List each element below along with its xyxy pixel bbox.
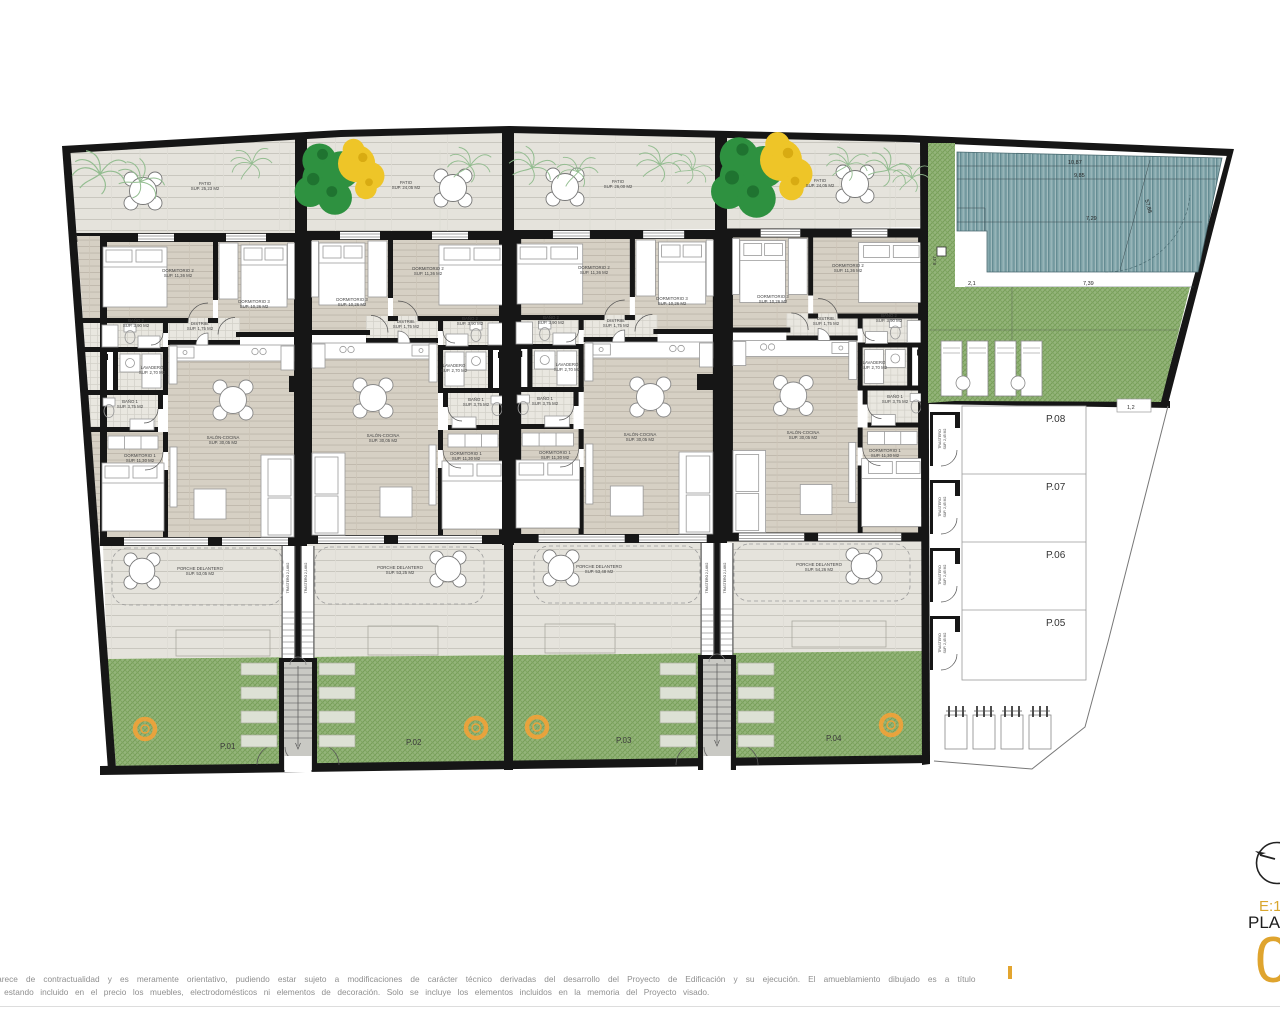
svg-text:SUP. 11,30 M2: SUP. 11,30 M2 (541, 455, 570, 460)
svg-text:TRASTERO 2,14M2: TRASTERO 2,14M2 (723, 563, 727, 594)
svg-text:P.05: P.05 (1046, 618, 1066, 629)
svg-text:SUP. 3,75 M2: SUP. 3,75 M2 (882, 399, 909, 404)
svg-text:TRASTERO 2,14M2: TRASTERO 2,14M2 (705, 563, 709, 594)
svg-text:SUP. 2,45 M2: SUP. 2,45 M2 (943, 633, 947, 654)
svg-text:TRASTERO 2,14M2: TRASTERO 2,14M2 (286, 563, 290, 594)
svg-text:1,2: 1,2 (1127, 405, 1135, 411)
svg-text:8,47: 8,47 (932, 256, 937, 265)
svg-text:SUP. 11,36 M2: SUP. 11,36 M2 (414, 271, 443, 276)
svg-text:SUP. 1,75 M2: SUP. 1,75 M2 (393, 324, 420, 329)
svg-text:SUP. 1,75 M2: SUP. 1,75 M2 (603, 323, 630, 328)
svg-text:SUP. 3,90 M2: SUP. 3,90 M2 (538, 320, 565, 325)
svg-text:TRASTERO: TRASTERO (938, 565, 942, 585)
svg-text:SUP. 53,25 M2: SUP. 53,25 M2 (386, 570, 415, 575)
svg-text:9,85: 9,85 (1074, 173, 1085, 179)
svg-text:SUP. 3,75 M2: SUP. 3,75 M2 (463, 402, 490, 407)
svg-text:SUP. 11,36 M2: SUP. 11,36 M2 (580, 270, 609, 275)
svg-text:P.03: P.03 (616, 736, 632, 745)
svg-text:SUP. 25,23 M2: SUP. 25,23 M2 (191, 186, 220, 191)
svg-text:SUP. 11,36 M2: SUP. 11,36 M2 (834, 268, 863, 273)
svg-text:SUP. 30,05 M2: SUP. 30,05 M2 (626, 437, 655, 442)
svg-text:SUP. 26,00 M2: SUP. 26,00 M2 (604, 184, 633, 189)
svg-text:SUP. 10,26 M2: SUP. 10,26 M2 (240, 304, 269, 309)
svg-text:TRASTERO: TRASTERO (938, 429, 942, 449)
svg-text:SUP. 30,05 M2: SUP. 30,05 M2 (369, 438, 398, 443)
svg-text:SUP. 10,26 M2: SUP. 10,26 M2 (759, 299, 788, 304)
svg-text:TRASTERO 2,14M2: TRASTERO 2,14M2 (304, 563, 308, 594)
svg-text:P.01: P.01 (220, 742, 236, 751)
svg-text:SUP. 24,05 M2: SUP. 24,05 M2 (392, 185, 421, 190)
svg-text:SUP. 3,75 M2: SUP. 3,75 M2 (117, 404, 144, 409)
svg-text:SUP. 3,90 M2: SUP. 3,90 M2 (876, 318, 903, 323)
svg-text:SUP. 3,90 M2: SUP. 3,90 M2 (457, 321, 484, 326)
svg-text:TRASTERO: TRASTERO (938, 497, 942, 517)
svg-text:SUP. 2,45 M2: SUP. 2,45 M2 (943, 497, 947, 518)
svg-text:SUP. 54,26 M2: SUP. 54,26 M2 (805, 567, 834, 572)
svg-text:SUP. 30,05 M2: SUP. 30,05 M2 (209, 440, 238, 445)
svg-text:SUP. 1,75 M2: SUP. 1,75 M2 (187, 326, 214, 331)
svg-text:P.06: P.06 (1046, 550, 1066, 561)
svg-text:2,1: 2,1 (968, 281, 976, 287)
svg-text:SUP. 53,48 M2: SUP. 53,48 M2 (585, 569, 614, 574)
svg-text:P.08: P.08 (1046, 414, 1066, 425)
svg-text:SUP. 3,75 M2: SUP. 3,75 M2 (532, 401, 559, 406)
svg-text:P.04: P.04 (826, 734, 842, 743)
svg-text:10,87: 10,87 (1068, 160, 1082, 166)
svg-text:7,39: 7,39 (1083, 281, 1094, 287)
svg-text:SUP. 2,45 M2: SUP. 2,45 M2 (943, 565, 947, 586)
svg-text:SUP. 11,30 M2: SUP. 11,30 M2 (452, 456, 481, 461)
svg-text:SUP. 2,70 M2: SUP. 2,70 M2 (554, 367, 581, 372)
svg-text:SUP. 11,30 M2: SUP. 11,30 M2 (871, 453, 900, 458)
svg-text:SUP. 2,45 M2: SUP. 2,45 M2 (943, 429, 947, 450)
svg-text:SUP. 2,70 M2: SUP. 2,70 M2 (861, 365, 888, 370)
svg-text:SUP. 11,36 M2: SUP. 11,36 M2 (164, 273, 193, 278)
svg-text:SUP. 2,70 M2: SUP. 2,70 M2 (441, 368, 468, 373)
svg-text:P.02: P.02 (406, 738, 422, 747)
svg-text:SUP. 1,75 M2: SUP. 1,75 M2 (813, 321, 840, 326)
svg-text:7,29: 7,29 (1086, 216, 1097, 222)
svg-text:SUP. 24,05 M2: SUP. 24,05 M2 (806, 183, 835, 188)
svg-text:P.07: P.07 (1046, 482, 1066, 493)
svg-text:SUP. 30,05 M2: SUP. 30,05 M2 (789, 435, 818, 440)
svg-text:SUP. 3,90 M2: SUP. 3,90 M2 (123, 323, 150, 328)
svg-text:TRASTERO: TRASTERO (938, 633, 942, 653)
svg-text:SUP. 53,05 M2: SUP. 53,05 M2 (186, 571, 215, 576)
svg-text:SUP. 11,30 M2: SUP. 11,30 M2 (126, 458, 155, 463)
svg-text:SUP. 10,26 M2: SUP. 10,26 M2 (658, 301, 687, 306)
svg-text:SUP. 2,70 M2: SUP. 2,70 M2 (139, 370, 166, 375)
svg-text:SUP. 10,26 M2: SUP. 10,26 M2 (338, 302, 367, 307)
